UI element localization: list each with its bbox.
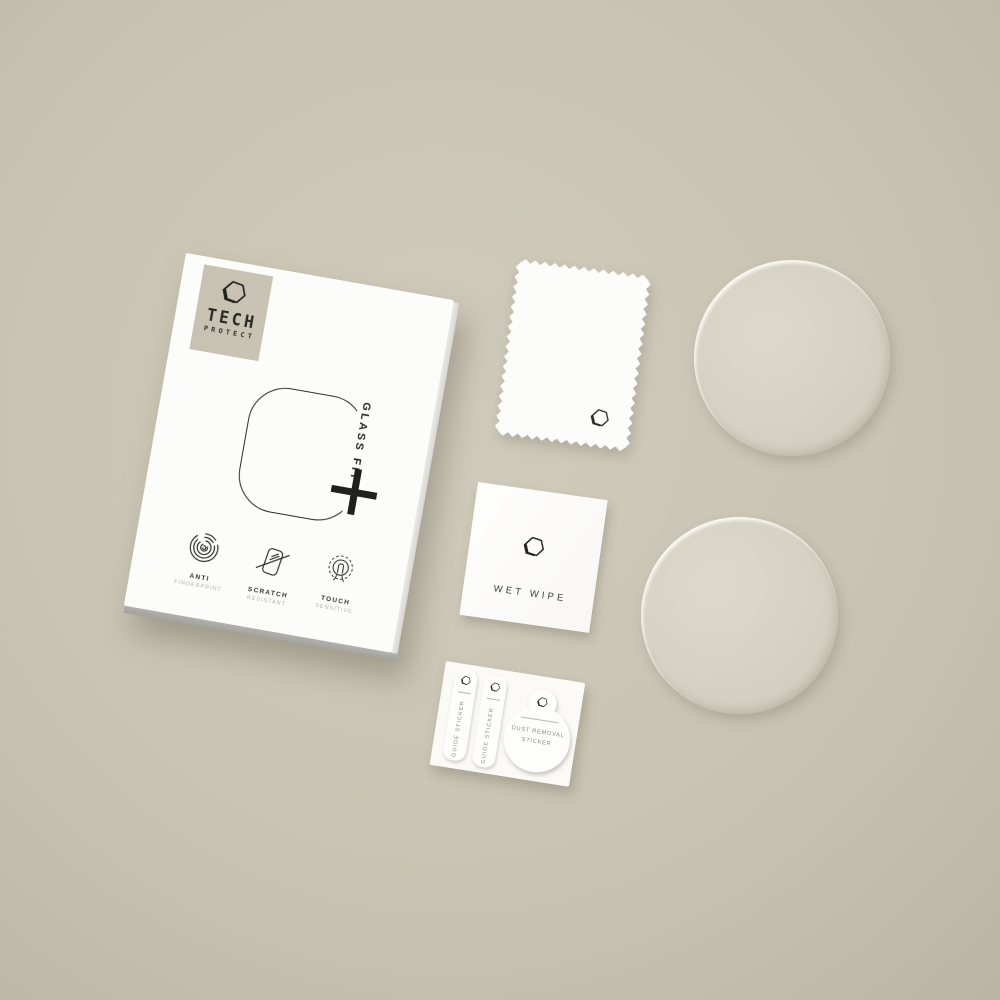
cloth-zigzag-shape <box>494 258 652 452</box>
wet-wipe-hexagon-icon <box>519 532 550 562</box>
guide-sticker-label: GUIDE STICKER <box>451 700 466 757</box>
divider-line <box>457 691 470 694</box>
sticker-hexagon-icon <box>488 680 503 694</box>
touch-icon <box>318 549 362 593</box>
wet-wipe-label: WET WIPE <box>463 579 594 608</box>
microfiber-cloth <box>494 258 652 452</box>
wet-wipe-sachet: WET WIPE <box>459 482 607 633</box>
product-photo-scene: TECH PROTECT GLASS FIT ANTI <box>0 0 1000 1000</box>
glass-protector-top <box>694 260 890 456</box>
scratch-icon <box>251 541 295 585</box>
sticker-sheet: GUIDE STICKER GUIDE STICKER DUST REMOVAL… <box>430 661 586 787</box>
glass-protector-bottom <box>641 517 838 714</box>
sticker-hexagon-icon <box>458 673 473 687</box>
plus-icon <box>327 465 380 518</box>
fingerprint-icon <box>182 526 226 570</box>
dust-removal-sticker: DUST REMOVAL STICKER <box>491 677 585 784</box>
brand-badge: TECH PROTECT <box>189 264 273 361</box>
guide-sticker-label: GUIDE STICKER <box>480 707 495 764</box>
sticker-hexagon-icon <box>535 695 551 710</box>
brand-hexagon-icon <box>217 275 254 310</box>
cloth-hexagon-icon <box>586 405 614 431</box>
divider-line <box>487 698 500 701</box>
feature-touch-sensitive: TOUCH SENSITIVE <box>295 545 382 618</box>
retail-box: TECH PROTECT GLASS FIT ANTI <box>124 253 454 653</box>
